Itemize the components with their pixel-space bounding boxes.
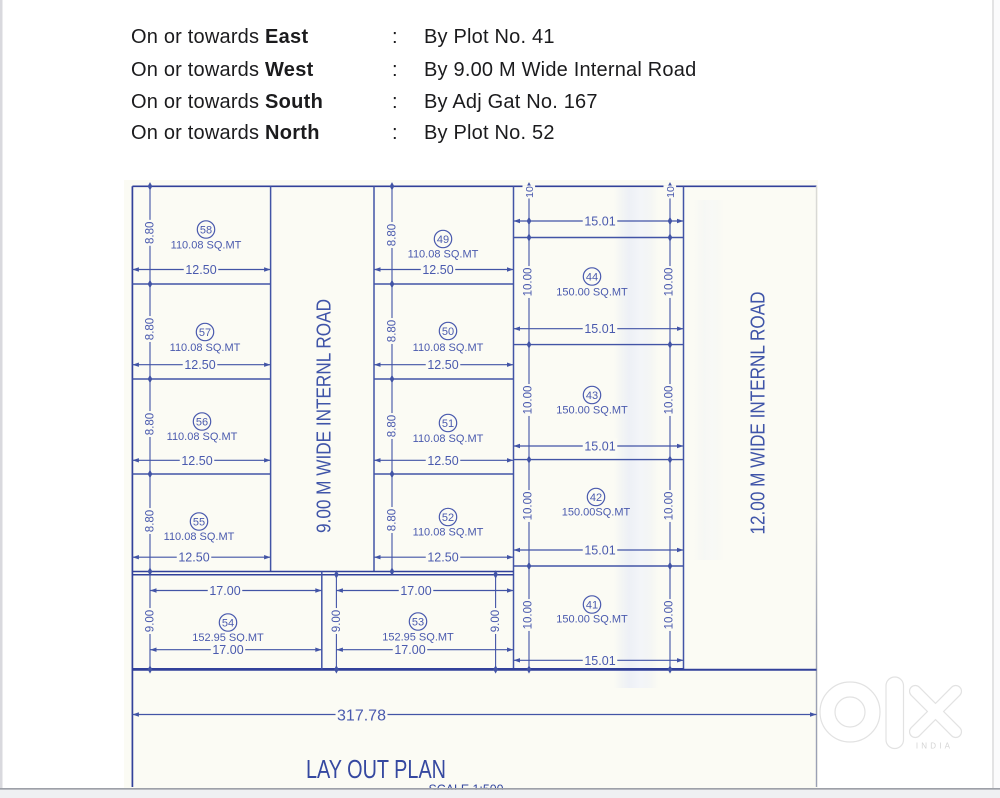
svg-text:110.08 SQ.MT: 110.08 SQ.MT [171, 240, 242, 252]
svg-text:9.00: 9.00 [331, 610, 343, 632]
svg-text:9.00: 9.00 [145, 610, 157, 632]
svg-text:55: 55 [193, 516, 205, 528]
svg-text:110.08 SQ.MT: 110.08 SQ.MT [164, 531, 235, 543]
svg-text:150.00 SQ.MT: 150.00 SQ.MT [556, 405, 628, 417]
svg-text:56: 56 [196, 416, 208, 428]
svg-text:10.00: 10.00 [523, 386, 535, 415]
svg-text:9.00: 9.00 [490, 610, 502, 632]
svg-text:52: 52 [442, 512, 454, 524]
svg-text:10.00: 10.00 [523, 601, 535, 630]
svg-text:49: 49 [437, 234, 449, 246]
svg-text:9.00 M WIDE INTERNL ROAD: 9.00 M WIDE INTERNL ROAD [313, 299, 336, 533]
svg-text:10: 10 [665, 186, 677, 198]
svg-text:54: 54 [222, 617, 234, 629]
svg-text:12.50: 12.50 [185, 263, 216, 277]
svg-text:12.50: 12.50 [178, 551, 209, 565]
svg-text:44: 44 [586, 271, 598, 283]
svg-text:8.80: 8.80 [387, 224, 399, 246]
svg-text:12.00 M WIDE INTERNL ROAD: 12.00 M WIDE INTERNL ROAD [747, 292, 770, 535]
svg-text:10.00: 10.00 [523, 492, 535, 521]
svg-text:10.00: 10.00 [664, 601, 676, 630]
svg-text:8.80: 8.80 [387, 509, 399, 531]
svg-text:51: 51 [442, 418, 454, 430]
svg-text:12.50: 12.50 [427, 551, 458, 565]
svg-text:LAY OUT PLAN: LAY OUT PLAN [306, 756, 446, 784]
svg-text:10.00: 10.00 [523, 268, 535, 297]
svg-text:8.80: 8.80 [387, 415, 399, 437]
svg-text:15.01: 15.01 [584, 215, 615, 229]
svg-text:12.50: 12.50 [422, 263, 453, 277]
svg-text:10.00: 10.00 [664, 386, 676, 415]
svg-text:110.08 SQ.MT: 110.08 SQ.MT [408, 249, 479, 261]
svg-text:42: 42 [590, 492, 602, 504]
svg-text:110.08 SQ.MT: 110.08 SQ.MT [413, 342, 484, 354]
svg-text:110.08 SQ.MT: 110.08 SQ.MT [413, 433, 484, 445]
svg-text:317.78: 317.78 [337, 707, 386, 724]
svg-text:12.50: 12.50 [184, 358, 215, 372]
svg-text:8.80: 8.80 [145, 318, 157, 340]
svg-text:150.00 SQ.MT: 150.00 SQ.MT [556, 614, 628, 626]
svg-text:17.00: 17.00 [400, 584, 431, 598]
svg-text:10: 10 [524, 186, 536, 198]
svg-text:110.08 SQ.MT: 110.08 SQ.MT [413, 527, 484, 539]
svg-text:152.95 SQ.MT: 152.95 SQ.MT [382, 632, 454, 644]
svg-text:8.80: 8.80 [145, 222, 157, 244]
svg-text:12.50: 12.50 [427, 358, 458, 372]
svg-text:8.80: 8.80 [387, 320, 399, 342]
svg-text:41: 41 [586, 599, 598, 611]
svg-text:15.01: 15.01 [584, 544, 615, 558]
svg-text:12.50: 12.50 [427, 454, 458, 468]
svg-text:15.01: 15.01 [584, 440, 615, 454]
svg-text:17.00: 17.00 [212, 643, 243, 657]
svg-text:17.00: 17.00 [209, 584, 240, 598]
svg-text:10.00: 10.00 [664, 268, 676, 297]
svg-text:150.00SQ.MT: 150.00SQ.MT [562, 507, 631, 519]
svg-text:110.08 SQ.MT: 110.08 SQ.MT [170, 342, 241, 354]
svg-text:58: 58 [200, 224, 212, 236]
svg-text:12.50: 12.50 [181, 454, 212, 468]
svg-text:150.00 SQ.MT: 150.00 SQ.MT [556, 287, 628, 299]
svg-text:10.00: 10.00 [664, 492, 676, 521]
svg-text:15.01: 15.01 [584, 322, 615, 336]
svg-text:53: 53 [412, 616, 424, 628]
svg-text:8.80: 8.80 [145, 413, 157, 435]
svg-text:110.08 SQ.MT: 110.08 SQ.MT [167, 431, 238, 443]
svg-text:50: 50 [442, 326, 454, 338]
svg-text:17.00: 17.00 [394, 643, 425, 657]
svg-text:INDIA: INDIA [916, 742, 953, 751]
svg-text:15.01: 15.01 [584, 654, 615, 668]
svg-text:43: 43 [586, 390, 598, 402]
svg-text:57: 57 [199, 327, 211, 339]
svg-text:8.80: 8.80 [145, 510, 157, 532]
